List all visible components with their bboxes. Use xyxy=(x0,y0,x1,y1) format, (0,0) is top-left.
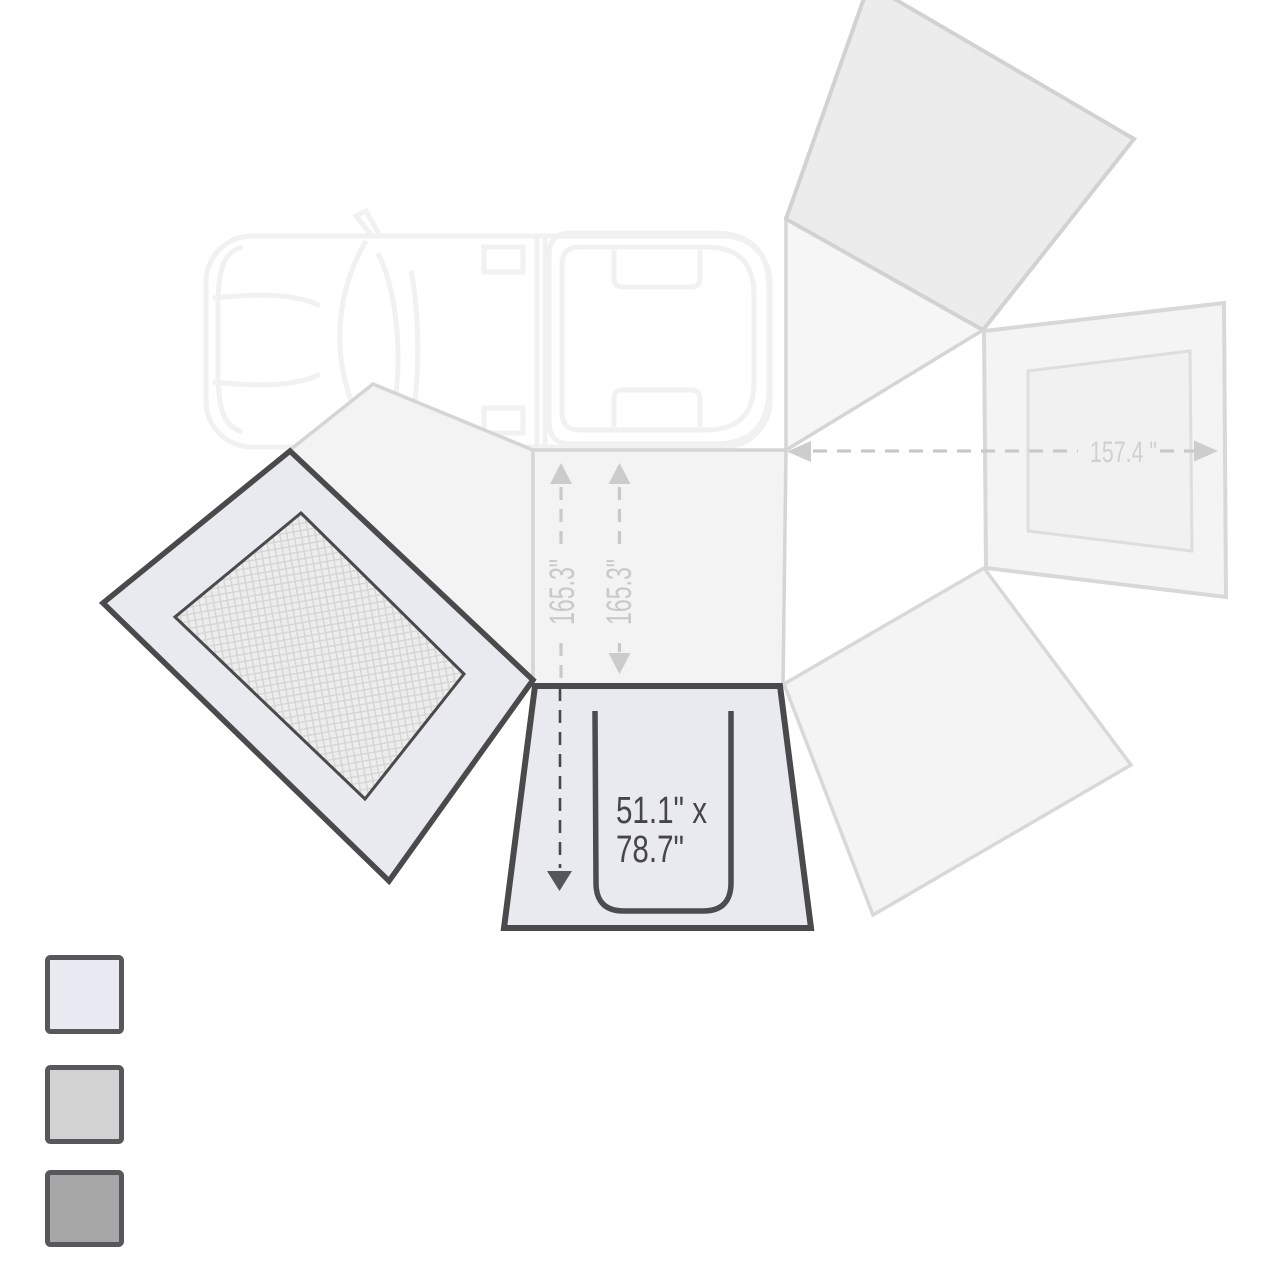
svg-text:78.7": 78.7" xyxy=(616,829,684,871)
svg-text:165.3": 165.3" xyxy=(600,559,639,625)
svg-text:51.1" x: 51.1" x xyxy=(616,790,707,832)
svg-text:165.3": 165.3" xyxy=(543,559,582,625)
svg-text:157.4 ": 157.4 " xyxy=(1090,436,1157,469)
